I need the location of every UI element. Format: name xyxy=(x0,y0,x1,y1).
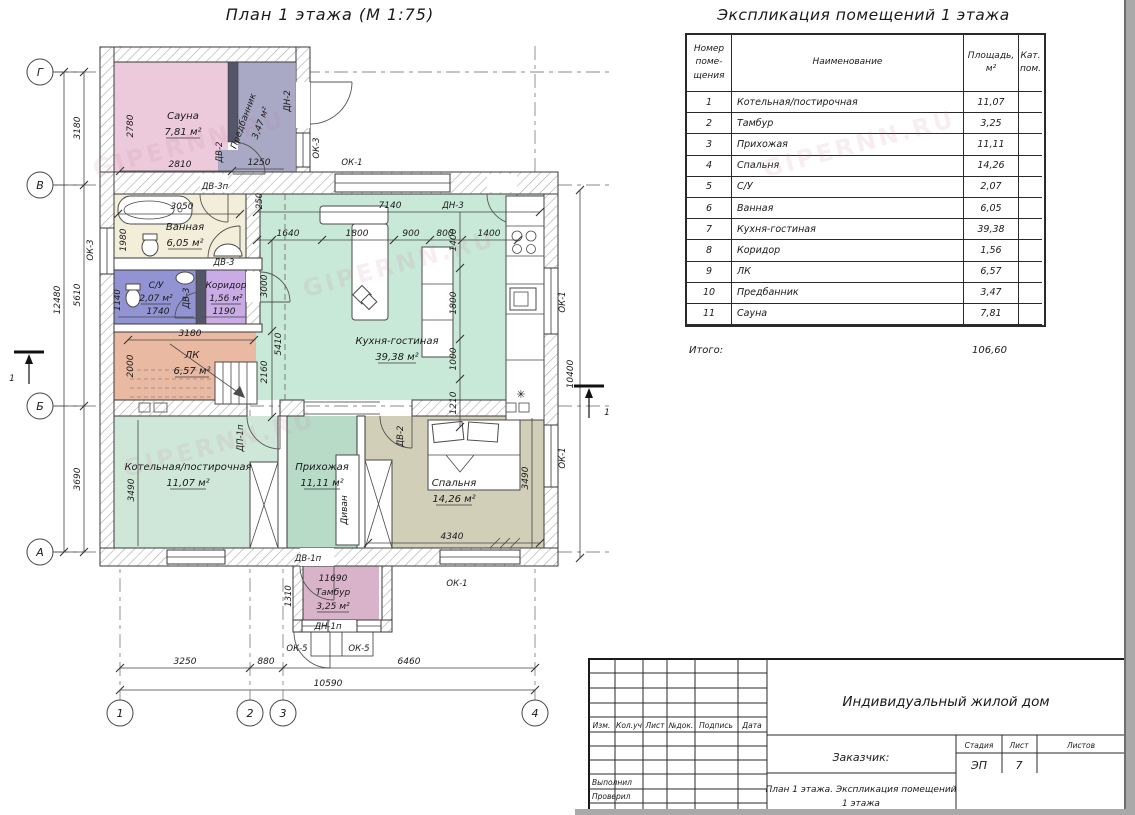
svg-text:1140: 1140 xyxy=(113,289,123,311)
svg-text:3: 3 xyxy=(280,707,287,720)
room-area: 39,38 xyxy=(964,219,1019,240)
svg-text:11690: 11690 xyxy=(319,574,348,584)
svg-text:ДВ-2: ДВ-2 xyxy=(396,426,406,448)
svg-text:6,05 м²: 6,05 м² xyxy=(167,238,204,249)
svg-text:250: 250 xyxy=(255,193,265,209)
svg-text:4: 4 xyxy=(532,707,539,720)
room-cat xyxy=(1019,156,1042,177)
room-area: 6,57 xyxy=(964,262,1019,283)
svg-text:ДН-2: ДН-2 xyxy=(283,90,293,113)
room-number: 9 xyxy=(687,262,732,283)
svg-text:900: 900 xyxy=(402,229,419,239)
svg-text:ДВ-3: ДВ-3 xyxy=(213,258,235,268)
svg-text:1800: 1800 xyxy=(449,291,459,314)
svg-text:1740: 1740 xyxy=(147,307,170,317)
fridge-snowflake-icon: ✳ xyxy=(516,388,525,401)
room-cat xyxy=(1019,304,1042,325)
svg-text:ДВ-3п: ДВ-3п xyxy=(201,182,229,192)
col-data: Дата xyxy=(741,721,762,730)
drawing-sheet: План 1 этажа (М 1:75) xyxy=(0,0,1135,815)
svg-text:3250: 3250 xyxy=(174,657,197,667)
toilet-su xyxy=(126,289,140,307)
svg-text:1: 1 xyxy=(604,408,610,418)
room-number: 4 xyxy=(687,156,732,177)
svg-text:2,07 м²: 2,07 м² xyxy=(139,294,173,304)
svg-text:1210: 1210 xyxy=(449,391,459,414)
project-title: Индивидуальный жилой дом xyxy=(842,694,1049,710)
svg-text:7140: 7140 xyxy=(379,201,402,211)
svg-text:3180: 3180 xyxy=(179,329,202,339)
room-name: ЛК xyxy=(732,262,964,283)
svg-text:1: 1 xyxy=(9,374,15,384)
svg-text:ОК-1: ОК-1 xyxy=(558,447,568,468)
svg-text:1000: 1000 xyxy=(449,347,459,370)
sink-su xyxy=(176,272,194,284)
stairs xyxy=(215,362,257,404)
svg-text:ОК-1: ОК-1 xyxy=(558,291,568,312)
svg-text:А: А xyxy=(35,546,44,559)
svg-text:Г: Г xyxy=(37,66,44,79)
floor-plan: ✳ 3 xyxy=(0,0,670,770)
room-name: Предбанник xyxy=(732,283,964,304)
svg-text:1980: 1980 xyxy=(119,228,129,251)
page-edge-bottom xyxy=(575,809,1135,815)
svg-text:ОК-3: ОК-3 xyxy=(312,137,322,158)
col-header-name: Наименование xyxy=(732,35,964,92)
svg-text:В: В xyxy=(36,179,44,192)
svg-text:12480: 12480 xyxy=(53,285,63,314)
sheet-label: Лист xyxy=(1008,741,1029,750)
room-area: 6,05 xyxy=(964,198,1019,219)
svg-text:10590: 10590 xyxy=(314,679,343,689)
room-number: 1 xyxy=(687,92,732,113)
label-vannaya: Ванная xyxy=(166,222,204,233)
col-podpis: Подпись xyxy=(699,721,733,730)
label-prihozhaya: Прихожая xyxy=(295,462,349,473)
table-title: Экспликация помещений 1 этажа xyxy=(685,6,1042,24)
svg-text:ДН-1п: ДН-1п xyxy=(313,622,342,632)
room-kuhnya xyxy=(256,194,544,400)
room-area: 7,81 xyxy=(964,304,1019,325)
svg-text:880: 880 xyxy=(257,657,274,667)
executed-label: Выполнил xyxy=(592,778,632,787)
label-koridor: Коридор xyxy=(206,281,247,291)
svg-text:1800: 1800 xyxy=(346,229,369,239)
svg-text:3000: 3000 xyxy=(260,274,270,297)
sheets-label: Листов xyxy=(1066,741,1095,750)
room-number: 10 xyxy=(687,283,732,304)
label-su: С/У xyxy=(149,281,164,291)
svg-text:2160: 2160 xyxy=(260,360,270,383)
title-block: Изм. Кол.уч Лист №док. Подпись Дата Выпо… xyxy=(588,658,1127,815)
room-area: 11,11 xyxy=(964,134,1019,155)
svg-text:3180: 3180 xyxy=(73,116,83,139)
explication-table: Номер поме- щения Наименование Площадь, … xyxy=(685,33,1046,327)
col-header-area: Площадь, м² xyxy=(964,35,1019,92)
svg-text:ОК-5: ОК-5 xyxy=(348,644,369,654)
room-area: 11,07 xyxy=(964,92,1019,113)
col-header-number: Номер поме- щения xyxy=(687,35,732,92)
svg-text:ДВ-3: ДВ-3 xyxy=(182,288,192,310)
svg-text:1310: 1310 xyxy=(284,585,294,607)
room-cat xyxy=(1019,262,1042,283)
stage-value: ЭП xyxy=(970,759,987,772)
room-name: Сауна xyxy=(732,304,964,325)
checked-label: Проверил xyxy=(592,792,631,801)
svg-text:4340: 4340 xyxy=(441,532,464,542)
sheet-value: 7 xyxy=(1016,759,1023,772)
room-name: Ванная xyxy=(732,198,964,219)
col-ndok: №док. xyxy=(668,721,694,730)
room-cat xyxy=(1019,219,1042,240)
svg-text:1,56 м²: 1,56 м² xyxy=(209,294,243,304)
svg-text:1: 1 xyxy=(117,707,124,720)
room-number: 3 xyxy=(687,134,732,155)
room-number: 5 xyxy=(687,177,732,198)
svg-text:1 этажа: 1 этажа xyxy=(842,799,880,809)
room-area: 2,07 xyxy=(964,177,1019,198)
room-number: 2 xyxy=(687,113,732,134)
svg-text:2: 2 xyxy=(247,707,254,720)
svg-text:10400: 10400 xyxy=(566,359,576,388)
room-number: 6 xyxy=(687,198,732,219)
client-label: Заказчик: xyxy=(832,751,889,764)
svg-text:11,11 м²: 11,11 м² xyxy=(300,478,343,489)
col-koluch: Кол.уч xyxy=(616,721,643,730)
label-lk: ЛК xyxy=(184,350,201,361)
svg-text:2000: 2000 xyxy=(126,354,136,377)
svg-text:ОК-3: ОК-3 xyxy=(86,239,96,260)
svg-text:ДВ-1п: ДВ-1п xyxy=(294,554,322,564)
svg-text:3,25 м²: 3,25 м² xyxy=(316,602,350,612)
room-number: 7 xyxy=(687,219,732,240)
toilet xyxy=(142,238,158,256)
svg-text:6460: 6460 xyxy=(398,657,421,667)
total-label: Итого: xyxy=(689,345,723,356)
svg-text:3050: 3050 xyxy=(171,202,194,212)
svg-text:39,38 м²: 39,38 м² xyxy=(375,352,418,363)
label-spalnya: Спальня xyxy=(432,478,477,489)
doc-title: План 1 этажа. Экспликация помещений xyxy=(765,785,956,795)
room-cat xyxy=(1019,198,1042,219)
svg-text:ОК-5: ОК-5 xyxy=(286,644,307,654)
room-name: Коридор xyxy=(732,240,964,261)
svg-text:ОК-1: ОК-1 xyxy=(446,579,467,589)
svg-text:5610: 5610 xyxy=(73,283,83,306)
col-header-cat: Кат. пом. xyxy=(1019,35,1042,92)
room-number: 11 xyxy=(687,304,732,325)
label-sauna: Сауна xyxy=(167,111,199,122)
label-tambur: Тамбур xyxy=(316,588,351,598)
svg-text:1640: 1640 xyxy=(277,229,300,239)
room-area: 3,47 xyxy=(964,283,1019,304)
svg-text:3490: 3490 xyxy=(521,466,531,489)
room-cat xyxy=(1019,92,1042,113)
stage-label: Стадия xyxy=(965,741,994,750)
room-area: 1,56 xyxy=(964,240,1019,261)
page-edge-right xyxy=(1124,0,1135,815)
svg-text:14,26 м²: 14,26 м² xyxy=(432,494,475,505)
room-cat xyxy=(1019,240,1042,261)
label-kuhnya: Кухня-гостиная xyxy=(356,336,439,347)
svg-text:6,57 м²: 6,57 м² xyxy=(174,366,211,377)
svg-text:ОК-1: ОК-1 xyxy=(341,158,362,168)
total-area: 106,60 xyxy=(962,345,1017,356)
svg-text:2780: 2780 xyxy=(126,114,136,137)
label-divan: Диван xyxy=(340,495,350,526)
room-cat xyxy=(1019,113,1042,134)
room-area: 3,25 xyxy=(964,113,1019,134)
room-area: 14,26 xyxy=(964,156,1019,177)
svg-text:1250: 1250 xyxy=(248,158,271,168)
room-cat xyxy=(1019,177,1042,198)
room-name: Кухня-гостиная xyxy=(732,219,964,240)
svg-text:11,07 м²: 11,07 м² xyxy=(166,478,209,489)
room-cat xyxy=(1019,283,1042,304)
svg-text:3690: 3690 xyxy=(73,467,83,490)
col-list: Лист xyxy=(644,721,665,730)
room-number: 8 xyxy=(687,240,732,261)
svg-text:5410: 5410 xyxy=(274,332,284,355)
svg-text:Б: Б xyxy=(36,400,44,413)
col-izm: Изм. xyxy=(593,721,611,730)
room-cat xyxy=(1019,134,1042,155)
svg-text:ДН-3: ДН-3 xyxy=(441,201,464,211)
svg-text:1190: 1190 xyxy=(213,307,236,317)
